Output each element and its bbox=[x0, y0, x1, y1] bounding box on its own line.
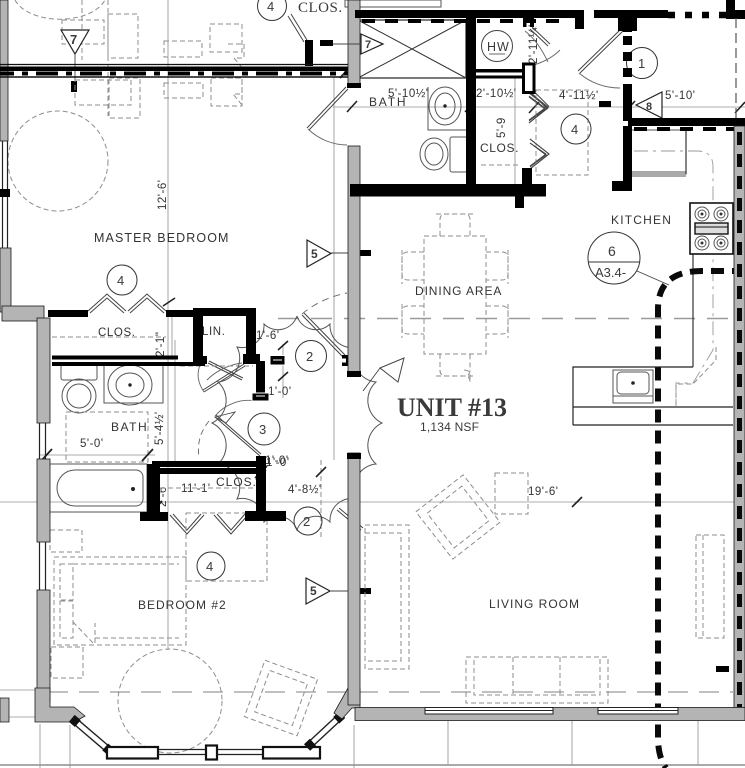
svg-text:11'-1': 11'-1' bbox=[181, 483, 211, 495]
svg-text:2'-1": 2'-1" bbox=[155, 332, 167, 357]
svg-text:5'-10½': 5'-10½' bbox=[388, 88, 429, 100]
svg-text:2: 2 bbox=[306, 349, 313, 364]
svg-text:5'-0': 5'-0' bbox=[80, 438, 104, 450]
svg-text:KITCHEN: KITCHEN bbox=[611, 213, 672, 227]
svg-text:6: 6 bbox=[608, 243, 616, 259]
svg-text:CLOS.: CLOS. bbox=[480, 141, 519, 155]
svg-text:UNIT #13: UNIT #13 bbox=[397, 393, 507, 422]
svg-text:MASTER BEDROOM: MASTER BEDROOM bbox=[94, 231, 230, 245]
svg-text:CLOS.: CLOS. bbox=[216, 475, 257, 489]
svg-text:5'-10': 5'-10' bbox=[665, 90, 695, 102]
svg-text:4: 4 bbox=[117, 273, 124, 288]
svg-text:4'-11½': 4'-11½' bbox=[559, 90, 599, 102]
svg-text:1: 1 bbox=[638, 56, 645, 71]
svg-text:4: 4 bbox=[267, 0, 274, 14]
svg-text:5'-9: 5'-9 bbox=[496, 117, 508, 138]
svg-text:5'-4½': 5'-4½' bbox=[154, 411, 166, 445]
svg-text:2: 2 bbox=[303, 514, 310, 529]
svg-text:LIN.: LIN. bbox=[202, 326, 226, 338]
svg-text:1'-0': 1'-0' bbox=[265, 455, 289, 467]
svg-text:2'-11¼': 2'-11¼' bbox=[528, 24, 540, 64]
svg-text:BEDROOM #2: BEDROOM #2 bbox=[138, 598, 227, 612]
svg-text:1,134 NSF: 1,134 NSF bbox=[420, 420, 479, 434]
svg-text:4: 4 bbox=[206, 559, 213, 574]
svg-text:4: 4 bbox=[571, 122, 578, 137]
svg-text:A3.4-: A3.4- bbox=[595, 265, 626, 280]
svg-text:5: 5 bbox=[310, 584, 317, 598]
svg-text:12'-6': 12'-6' bbox=[157, 180, 169, 210]
svg-text:7: 7 bbox=[70, 32, 77, 47]
svg-text:DINING AREA: DINING AREA bbox=[415, 284, 502, 298]
svg-text:7: 7 bbox=[365, 39, 371, 51]
svg-text:2'-10½': 2'-10½' bbox=[476, 88, 517, 100]
svg-text:8: 8 bbox=[646, 101, 652, 113]
svg-text:3: 3 bbox=[259, 422, 266, 437]
svg-text:HW: HW bbox=[487, 40, 510, 54]
svg-text:1'-6': 1'-6' bbox=[256, 330, 280, 342]
svg-text:4'-8½': 4'-8½' bbox=[288, 484, 322, 496]
svg-text:CLOS.: CLOS. bbox=[298, 0, 343, 16]
svg-text:5: 5 bbox=[311, 247, 318, 261]
svg-text:1'-0': 1'-0' bbox=[268, 386, 292, 398]
svg-text:19'-6': 19'-6' bbox=[528, 486, 558, 498]
svg-text:BATH: BATH bbox=[111, 420, 148, 434]
svg-text:LIVING ROOM: LIVING ROOM bbox=[489, 597, 580, 611]
